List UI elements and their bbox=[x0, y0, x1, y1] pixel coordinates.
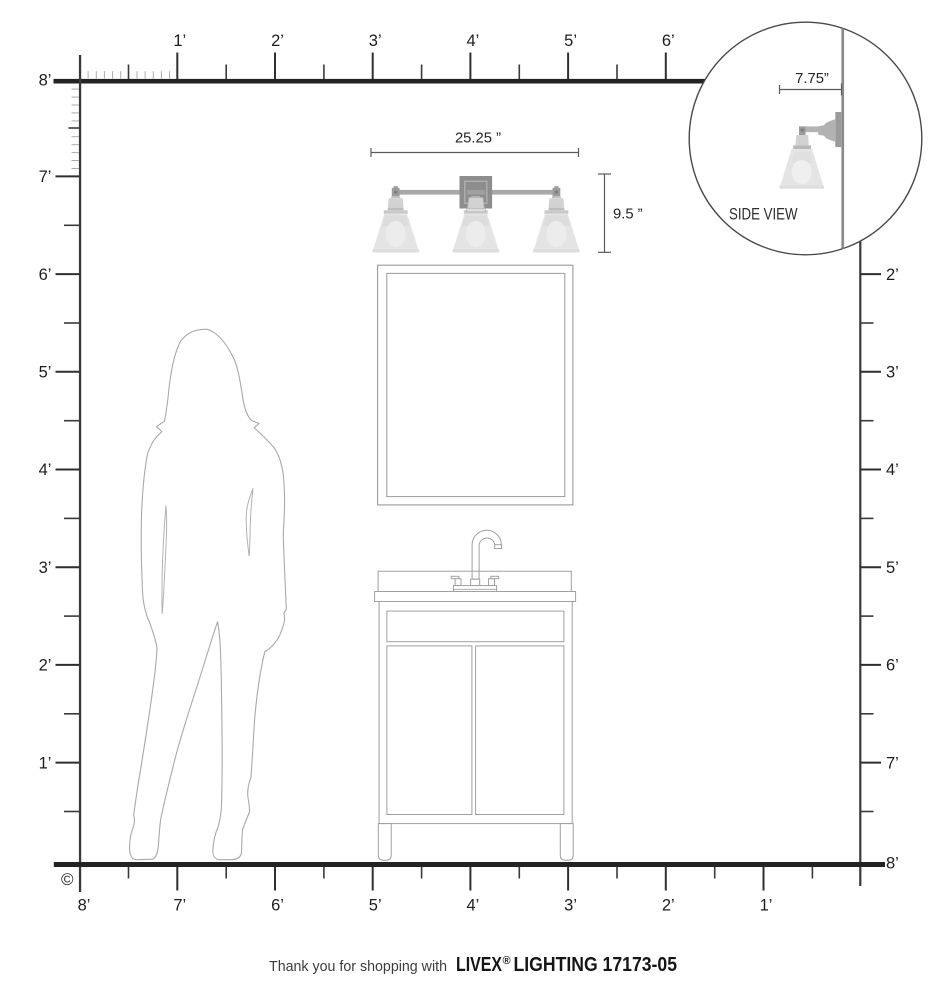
svg-text:7’: 7’ bbox=[39, 168, 52, 186]
svg-text:3’: 3’ bbox=[39, 559, 52, 577]
svg-text:2’: 2’ bbox=[39, 657, 52, 675]
svg-text:7’: 7’ bbox=[173, 897, 186, 915]
svg-text:5’: 5’ bbox=[39, 364, 52, 382]
svg-text:3’: 3’ bbox=[564, 897, 577, 915]
svg-text:1’: 1’ bbox=[173, 32, 186, 50]
svg-text:9.5 ”: 9.5 ” bbox=[613, 207, 643, 223]
svg-text:8’: 8’ bbox=[39, 72, 52, 90]
svg-text:5’: 5’ bbox=[564, 32, 577, 50]
svg-text:4’: 4’ bbox=[886, 461, 899, 479]
svg-text:3’: 3’ bbox=[369, 32, 382, 50]
svg-text:4’: 4’ bbox=[466, 897, 479, 915]
svg-text:2’: 2’ bbox=[271, 32, 284, 50]
svg-text:4’: 4’ bbox=[39, 461, 52, 479]
svg-text:7.75”: 7.75” bbox=[795, 71, 829, 87]
svg-text:8’: 8’ bbox=[78, 897, 91, 915]
svg-text:©: © bbox=[61, 870, 74, 889]
svg-text:2’: 2’ bbox=[662, 897, 675, 915]
svg-text:25.25 ”: 25.25 ” bbox=[455, 131, 501, 147]
svg-text:1’: 1’ bbox=[39, 754, 52, 772]
svg-text:1’: 1’ bbox=[760, 897, 773, 915]
svg-text:2’: 2’ bbox=[886, 266, 899, 284]
svg-text:Thank you for shopping withLIV: Thank you for shopping withLIVEX®LIGHTIN… bbox=[269, 954, 677, 976]
svg-text:6’: 6’ bbox=[662, 32, 675, 50]
svg-text:5’: 5’ bbox=[886, 559, 899, 577]
svg-text:6’: 6’ bbox=[886, 657, 899, 675]
svg-text:6’: 6’ bbox=[39, 266, 52, 284]
svg-text:8’: 8’ bbox=[886, 855, 899, 873]
svg-text:SIDE VIEW: SIDE VIEW bbox=[729, 205, 798, 224]
svg-text:5’: 5’ bbox=[369, 897, 382, 915]
svg-text:4’: 4’ bbox=[466, 32, 479, 50]
svg-text:7’: 7’ bbox=[886, 754, 899, 772]
svg-text:6’: 6’ bbox=[271, 897, 284, 915]
svg-text:3’: 3’ bbox=[886, 364, 899, 382]
